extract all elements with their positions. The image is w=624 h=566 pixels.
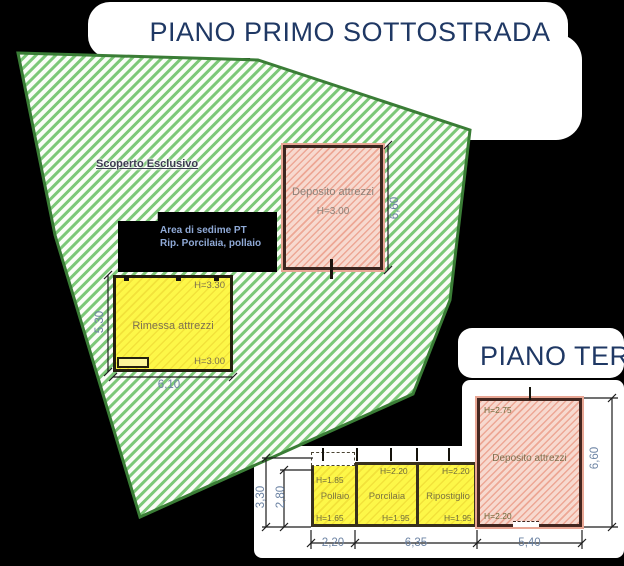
wall-tick [529, 387, 531, 400]
pt-footprint-label-line2: Rip. Porcilaia, pollaio [160, 237, 261, 250]
site-deposito-building: Deposito attrezzi H=3.00 [283, 145, 383, 270]
site-rimessa-building: Rimessa attrezzi H=3.30 H=3.00 [113, 275, 233, 372]
wall-tick [176, 276, 181, 281]
gp-pollaio-h-bottom: H=1.65 [316, 513, 344, 523]
gp-deposito-name: Deposito attrezzi [480, 453, 579, 464]
dim-gp-left-outer: 3,30 [255, 477, 269, 517]
lot-label: Scoperto Esclusivo [96, 158, 198, 170]
wall-tick [448, 448, 450, 461]
gp-ripostiglio-h-top: H=2.20 [442, 466, 470, 476]
dim-gp-middle-width: 6,35 [355, 537, 477, 549]
dim-deposito-right: 6,60 [389, 188, 403, 228]
gp-pollaio-open-top [311, 452, 355, 466]
wall-tick [416, 448, 418, 461]
dim-gp-left-inner: 2,80 [275, 477, 289, 517]
ground-plan-title: PIANO TERR [480, 341, 624, 372]
gp-yellow-strip: Pollaio H=1.85 H=1.65 Porcilaia H=2.20 H… [311, 462, 477, 527]
gp-deposito-building: Deposito attrezzi H=2.75 H=2.20 [477, 398, 582, 527]
lot-boundary [18, 53, 470, 517]
site-rimessa-height-bottom: H=3.00 [194, 356, 225, 367]
gp-room-ripostiglio: Ripostiglio [419, 491, 477, 502]
pt-footprint-label: Area di sedime PT Rip. Porcilaia, pollai… [160, 224, 261, 250]
gp-porcilaia-h-bottom: H=1.95 [382, 513, 410, 523]
site-deposito-door-tick [330, 259, 333, 279]
wall-tick [390, 448, 392, 461]
site-rimessa-name: Rimessa attrezzi [116, 320, 230, 332]
gp-pollaio-h-top: H=1.85 [316, 475, 344, 485]
wall-tick [124, 276, 129, 281]
site-deposito-height: H=3.00 [286, 206, 380, 217]
site-rimessa-annex [117, 357, 149, 368]
gp-room-pollaio: Pollaio [314, 491, 356, 502]
gp-ripostiglio-h-bottom: H=1.95 [444, 513, 472, 523]
dim-rimessa-left: 5,30 [94, 302, 108, 342]
site-rimessa-height-top: H=3.30 [194, 280, 225, 291]
pt-footprint-label-line1: Area di sedime PT [160, 224, 261, 237]
gp-porcilaia-h-top: H=2.20 [380, 466, 408, 476]
dim-gp-right-height: 6,60 [589, 438, 603, 478]
dim-gp-pollaio-width: 2,20 [311, 537, 355, 549]
site-plan-title: PIANO PRIMO SOTTOSTRADA [120, 17, 580, 48]
dim-rimessa-bottom: 6,10 [145, 379, 193, 391]
wall-tick [214, 276, 219, 281]
gp-deposito-h-top: H=2.75 [484, 405, 512, 415]
wall-tick [322, 448, 324, 461]
gp-room-porcilaia: Porcilaia [358, 491, 416, 502]
gp-deposito-h-bottom: H=2.20 [484, 511, 512, 521]
site-deposito-name: Deposito attrezzi [286, 186, 380, 198]
dim-gp-deposito-width: 5,40 [477, 537, 582, 549]
wall-tick [356, 448, 358, 461]
gp-deposito-door-gap [513, 521, 539, 527]
drawing-canvas: Scoperto Esclusivo Area di sedime PT Rip… [0, 0, 624, 566]
